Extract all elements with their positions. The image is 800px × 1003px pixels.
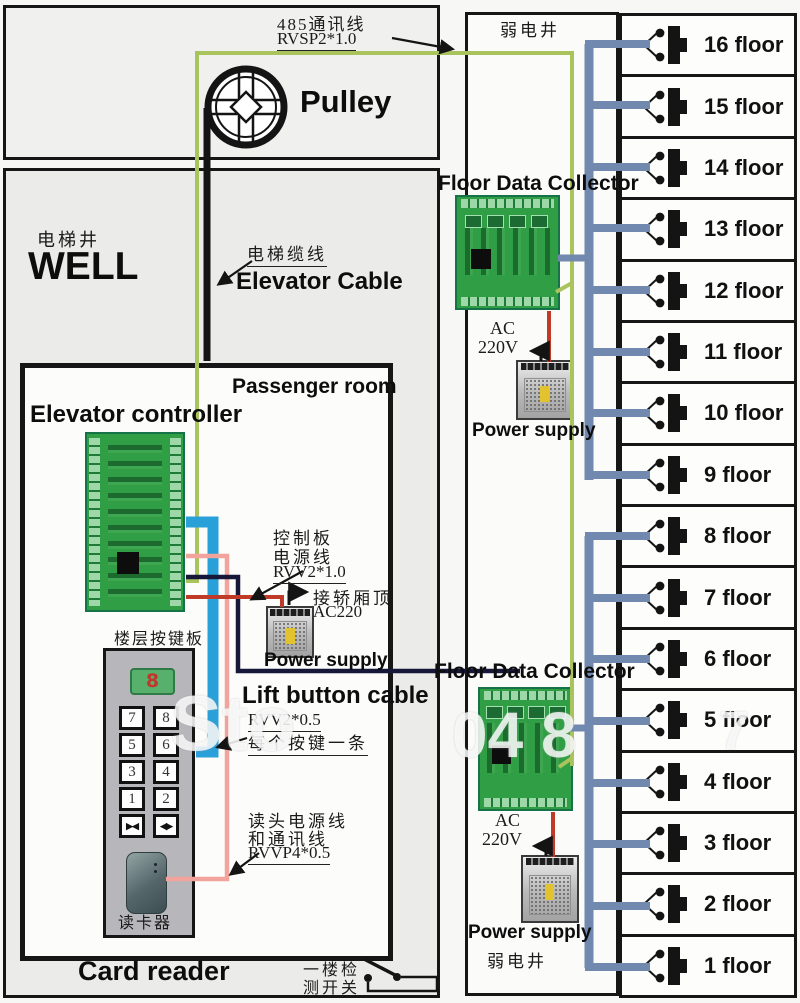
floor-label: 4 floor	[704, 769, 771, 795]
floor-display: 8	[130, 668, 175, 695]
floor-row: 6 floor	[622, 630, 794, 691]
floor-list: 16 floor 15 floor 14 floor	[619, 13, 797, 998]
keypad-panel-label: 楼层按键板	[114, 625, 204, 649]
floor-row: 2 floor	[622, 875, 794, 936]
terminal-strip	[89, 438, 100, 607]
terminal-strip	[484, 691, 568, 700]
lift-cable-note: 每个按键一条	[248, 729, 368, 756]
psu-terminals	[526, 858, 575, 865]
relay	[528, 706, 545, 719]
elevator-cable-label-en: Elevator Cable	[236, 268, 403, 296]
keypad: 78563412▶◀◀▶	[119, 706, 179, 838]
floor-connector-icon	[642, 514, 692, 558]
floor-connector-icon	[642, 23, 692, 67]
floor-connector-icon	[642, 85, 692, 129]
pcb-components	[108, 445, 162, 600]
psu-sticker	[540, 386, 549, 402]
floor-connector-icon	[642, 453, 692, 497]
collector2-power-supply-unit	[521, 855, 579, 923]
relay	[549, 706, 566, 719]
relay	[465, 215, 482, 228]
floor-row: 8 floor	[622, 507, 794, 568]
collector2-ac-label: AC	[495, 810, 520, 831]
floor-label: 13 floor	[704, 216, 783, 242]
floor-row: 4 floor	[622, 753, 794, 814]
collector1-220v-label: 220V	[478, 337, 518, 358]
floor-connector-icon	[642, 391, 692, 435]
control-power-spec: RVV2*1.0	[273, 562, 346, 584]
elevator-wiring-diagram: { "top": { "comm_label_l1": "485通讯线", "c…	[0, 0, 800, 1003]
floor-row: 3 floor	[622, 814, 794, 875]
relay	[531, 215, 548, 228]
floor-connector-icon	[642, 576, 692, 620]
floor-connector-icon	[642, 637, 692, 681]
keypad-button: 4	[153, 760, 179, 784]
reader-led	[154, 870, 157, 873]
collector1-power-supply-unit	[516, 360, 574, 420]
collector1-ac-label: AC	[490, 318, 515, 339]
floor-data-collector2-board	[478, 687, 573, 811]
floor-label: 7 floor	[704, 585, 771, 611]
reader-led	[154, 863, 157, 866]
elevator-cable-label-cn: 电梯缆线	[247, 240, 327, 267]
floor-connector-icon	[642, 944, 692, 988]
pcb-chip	[492, 745, 511, 764]
floor-row: 9 floor	[622, 446, 794, 507]
floor-label: 11 floor	[704, 339, 782, 365]
floor-row: 12 floor	[622, 262, 794, 323]
relay	[487, 215, 504, 228]
floor-label: 1 floor	[704, 953, 771, 979]
pcb-chip	[117, 552, 139, 574]
reader-cable-spec: RVVP4*0.5	[248, 843, 330, 865]
floor-connector-icon	[642, 146, 692, 190]
card-reader-label-en: Card reader	[78, 956, 230, 987]
passenger-room-label: Passenger room	[232, 375, 397, 399]
floor-row: 7 floor	[622, 568, 794, 629]
lift-button-cable-label: Lift button cable	[242, 682, 429, 710]
keypad-button: 7	[119, 706, 145, 730]
floor-row: 16 floor	[622, 16, 794, 77]
collector2-title: Floor Data Collector	[434, 660, 635, 684]
floor-data-collector1-board	[455, 195, 560, 310]
floor-label: 16 floor	[704, 32, 783, 58]
floor-connector-icon	[642, 207, 692, 251]
floor-row: 5 floor	[622, 691, 794, 752]
relay	[486, 706, 503, 719]
psu-terminals	[521, 363, 570, 370]
card-reader-device	[126, 852, 167, 914]
terminal-strip	[484, 798, 568, 807]
relay	[509, 215, 526, 228]
floor-row: 14 floor	[622, 139, 794, 200]
weak-well-top-label: 弱电井	[500, 16, 560, 41]
psu-sticker	[286, 628, 295, 644]
floor-label: 6 floor	[704, 646, 771, 672]
keypad-button: 1	[119, 787, 145, 811]
floor-label: 12 floor	[704, 278, 783, 304]
floor-row: 11 floor	[622, 323, 794, 384]
floor-label: 3 floor	[704, 830, 771, 856]
car-top-ac-label: AC220	[313, 602, 362, 622]
floor-connector-icon	[642, 821, 692, 865]
keypad-button: ◀▶	[153, 814, 179, 838]
floor-label: 10 floor	[704, 400, 783, 426]
floor1-switch-label-l2: 测开关	[303, 974, 360, 998]
keypad-button: 6	[153, 733, 179, 757]
well-label-en: WELL	[28, 245, 138, 289]
psu-terminals	[270, 609, 310, 616]
keypad-button: 5	[119, 733, 145, 757]
floor-connector-icon	[642, 882, 692, 926]
collector2-220v-label: 220V	[482, 829, 522, 850]
floor-connector-icon	[642, 269, 692, 313]
terminal-strip	[170, 438, 181, 607]
card-reader-label-cn: 读卡器	[118, 909, 172, 933]
keypad-button: 2	[153, 787, 179, 811]
elevator-controller-board	[85, 432, 185, 612]
floor-connector-icon	[642, 698, 692, 742]
floor-row: 10 floor	[622, 384, 794, 445]
terminal-strip	[461, 199, 554, 208]
floor-label: 8 floor	[704, 523, 771, 549]
relay	[507, 706, 524, 719]
machine-room-box	[3, 5, 440, 160]
comm-line-spec: RVSP2*1.0	[277, 29, 356, 51]
pulley-label: Pulley	[300, 84, 391, 120]
collector2-power-supply-label: Power supply	[468, 922, 592, 944]
floor-label: 15 floor	[704, 94, 783, 120]
floor-row: 15 floor	[622, 77, 794, 138]
floor-label: 5 floor	[704, 707, 771, 733]
floor-label: 14 floor	[704, 155, 783, 181]
floor-label: 9 floor	[704, 462, 771, 488]
floor-row: 13 floor	[622, 200, 794, 261]
keypad-button: 3	[119, 760, 145, 784]
psu-sticker	[545, 884, 554, 900]
keypad-button: ▶◀	[119, 814, 145, 838]
controller-power-supply-label: Power supply	[264, 650, 388, 672]
weak-well-bottom-label: 弱电井	[487, 947, 547, 972]
floor-row: 1 floor	[622, 937, 794, 995]
keypad-button: 8	[153, 706, 179, 730]
elevator-controller-label: Elevator controller	[30, 401, 242, 429]
collector1-power-supply-label: Power supply	[472, 420, 596, 442]
floor-connector-icon	[642, 760, 692, 804]
pcb-chip	[471, 249, 491, 269]
terminal-strip	[461, 297, 554, 306]
floor-button-panel: 8 78563412▶◀◀▶	[103, 648, 195, 938]
floor-connector-icon	[642, 330, 692, 374]
collector1-title: Floor Data Collector	[438, 172, 639, 196]
floor-label: 2 floor	[704, 891, 771, 917]
